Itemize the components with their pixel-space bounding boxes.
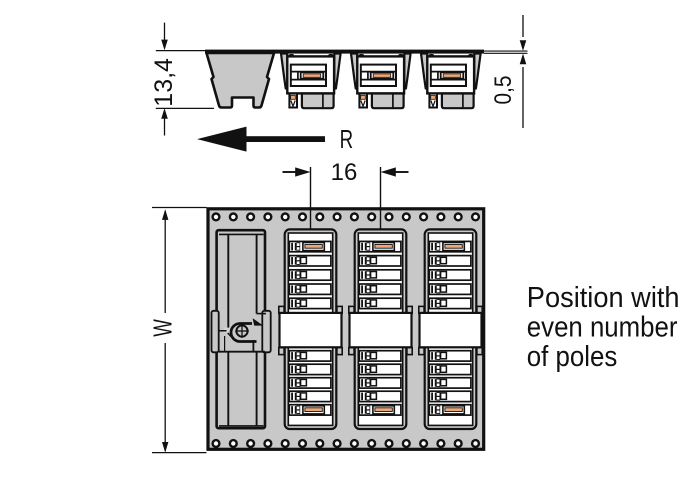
svg-text:16: 16	[331, 159, 358, 186]
svg-text:even number: even number	[527, 310, 678, 342]
svg-text:R: R	[340, 124, 354, 154]
svg-text:0,5: 0,5	[490, 75, 517, 104]
svg-text:13,4: 13,4	[150, 58, 178, 107]
svg-text:Position with: Position with	[527, 281, 680, 313]
svg-text:of poles: of poles	[527, 340, 617, 372]
svg-text:W: W	[148, 319, 177, 337]
